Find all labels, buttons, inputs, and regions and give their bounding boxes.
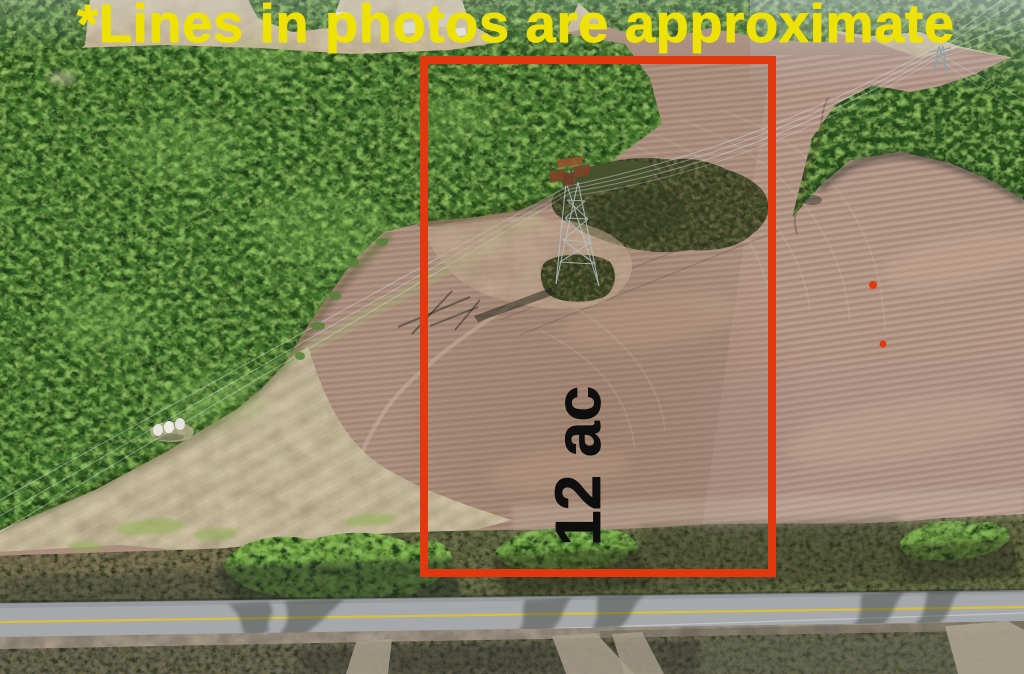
svg-text:*Lines in photos are approxima: *Lines in photos are approximate	[77, 0, 955, 54]
svg-text:12 ac: 12 ac	[542, 386, 614, 546]
